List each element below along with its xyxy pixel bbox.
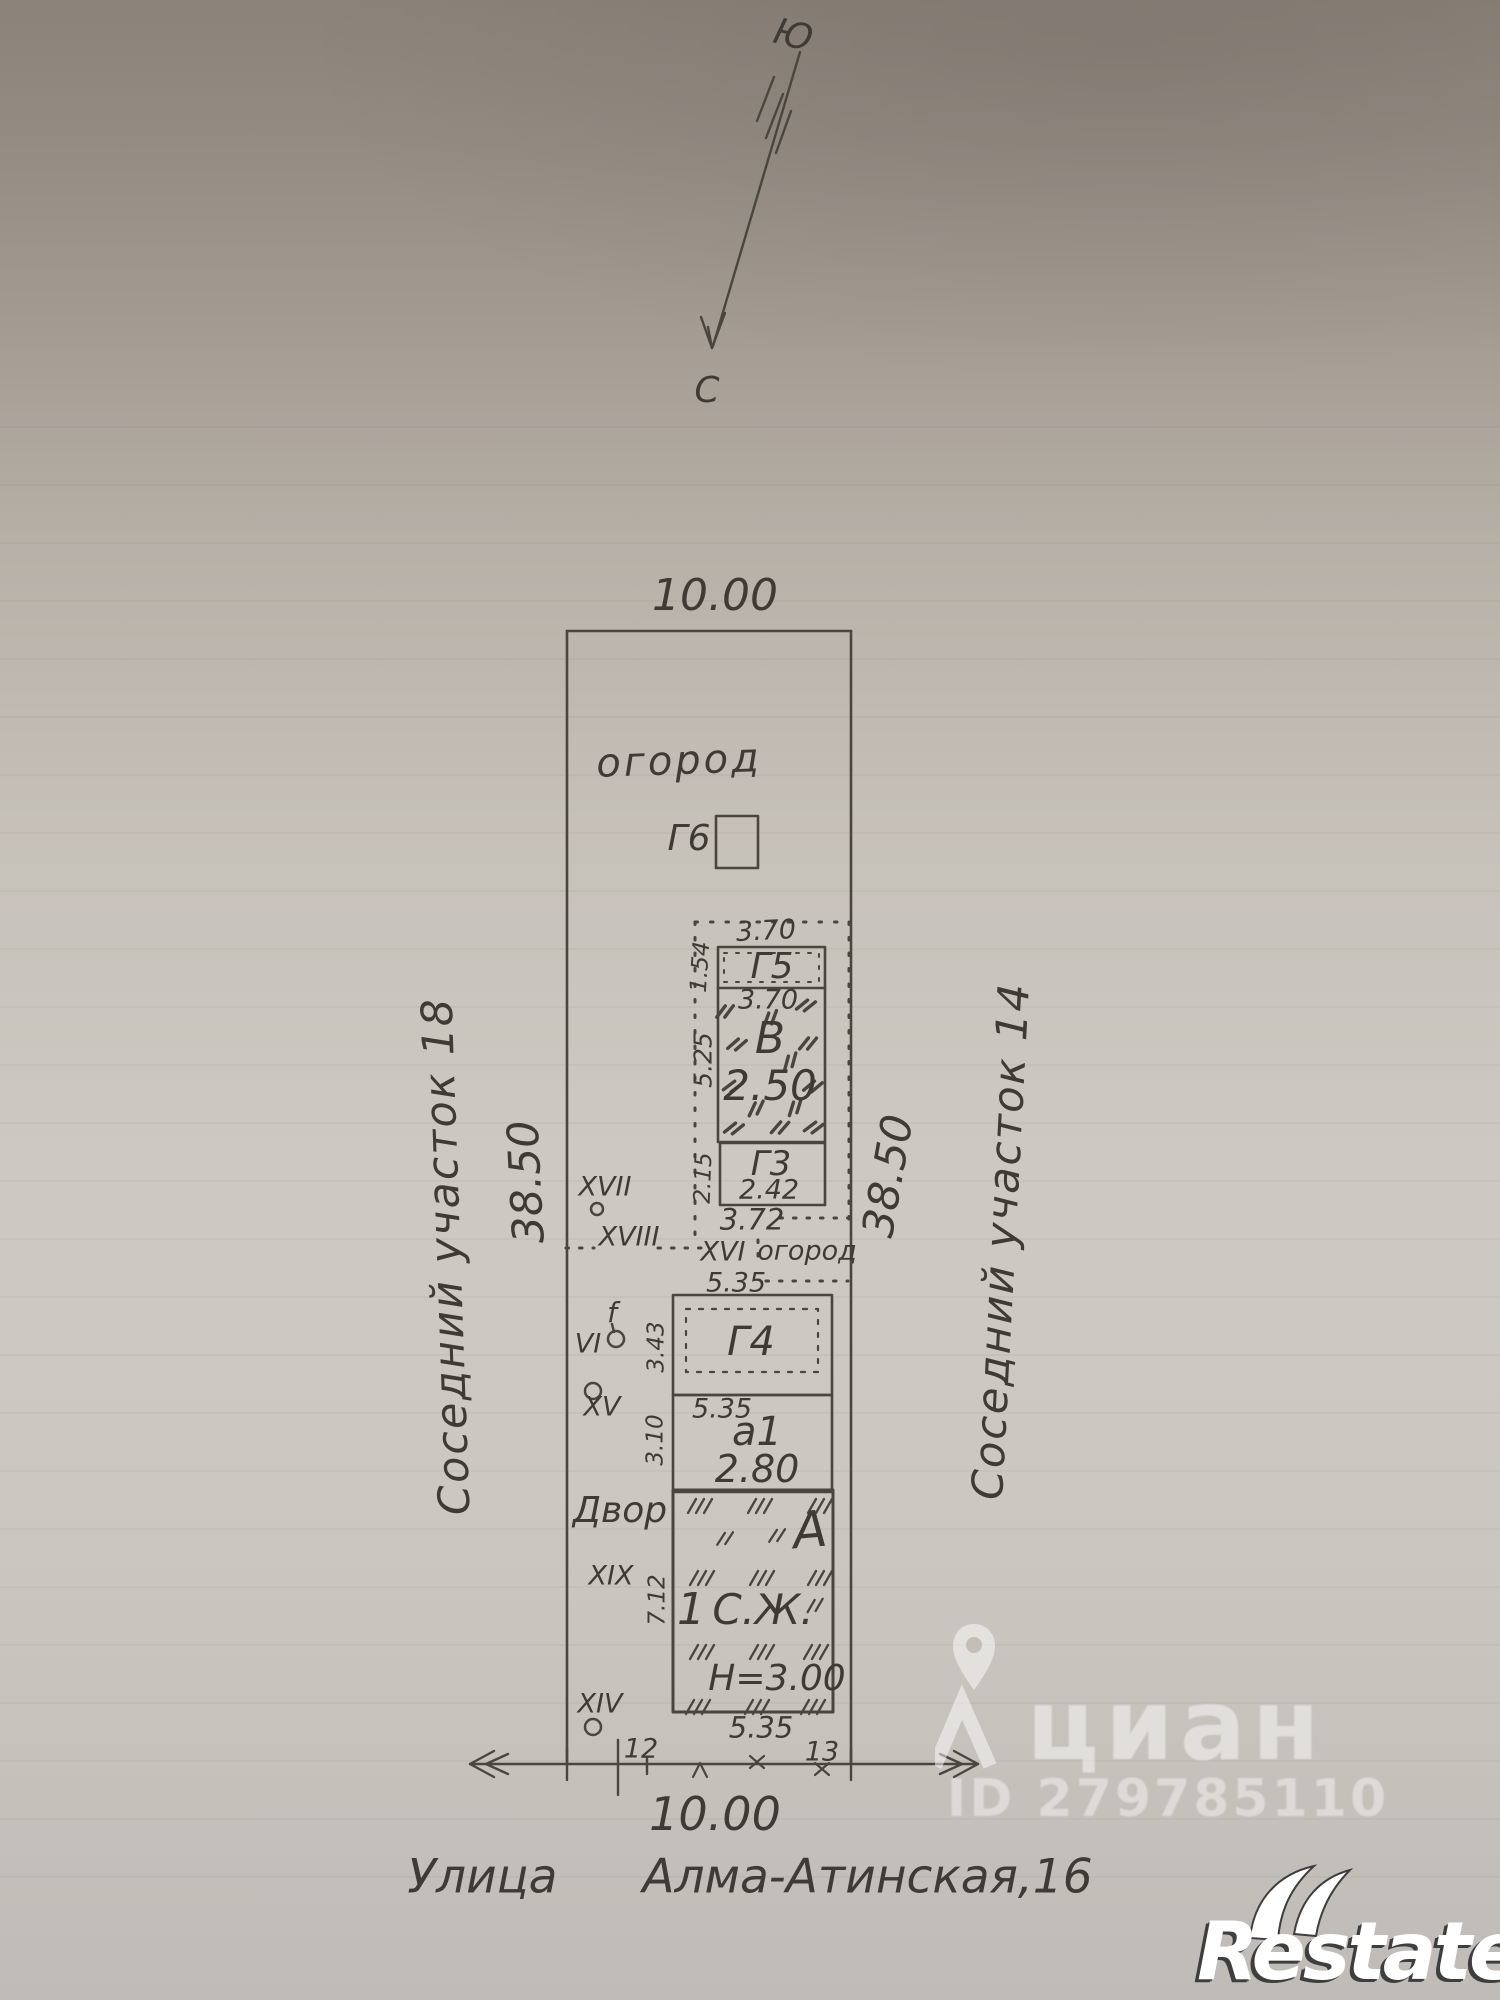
- house-height: Н=3.00: [708, 1661, 845, 1697]
- survey-point-xvi: XVI: [701, 1239, 746, 1266]
- house-depth-dimension: 7.12: [647, 1574, 670, 1625]
- annex-a1-label: а1: [732, 1412, 782, 1452]
- shed-v-label: В: [755, 1017, 785, 1061]
- shed-g6-outline: [716, 816, 758, 868]
- plot-bottom-width-dimension: 10.00: [649, 1791, 781, 1837]
- garden-top-label: огород: [596, 738, 763, 784]
- house-storeys: 1: [677, 1588, 705, 1632]
- garage-g4-width-dimension: 5.35: [706, 1270, 766, 1297]
- scanned-site-plan: Ю С 10.00 огород Г6 3.70 Г5 1.54 3.70 В …: [0, 0, 1500, 2000]
- survey-point-xix: XIX: [589, 1563, 634, 1590]
- plot-left-length-dimension: 38.50: [502, 1119, 551, 1244]
- street-name: Улица Алма-Атинская,16: [407, 1854, 1092, 1901]
- house-type: С.Ж.: [712, 1589, 813, 1631]
- cian-watermark: циан: [1026, 1669, 1325, 1783]
- survey-point-xv: XV: [584, 1394, 621, 1421]
- compass-north-label: С: [694, 373, 719, 409]
- shed-g3-depth-dimension: 2.15: [692, 1152, 717, 1204]
- house-a-label: А: [791, 1504, 829, 1557]
- yard-label: Двор: [573, 1493, 667, 1529]
- shed-g5-width-dimension: 3.70: [735, 916, 796, 946]
- shed-v-value: 2.50: [723, 1065, 817, 1107]
- shed-g6-label: Г6: [668, 821, 711, 857]
- survey-point-xvii: XVII: [579, 1174, 632, 1201]
- shed-g3-width-below-dimension: 3.72: [720, 1206, 785, 1235]
- annex-a1-value: 2.80: [715, 1450, 800, 1488]
- garden-mid-label: огород: [757, 1238, 857, 1265]
- house-width-dimension: 5.35: [729, 1714, 794, 1743]
- shed-v-depth-dimension: 5.25: [691, 1032, 716, 1088]
- survey-point-xviii: XVIII: [599, 1224, 660, 1251]
- survey-point-xiv: XIV: [578, 1691, 623, 1718]
- restate-logo: Restate: [1197, 1905, 1500, 1998]
- survey-point-13: 13: [805, 1739, 839, 1766]
- garage-g4-depth-dimension: 3.43: [646, 1321, 669, 1372]
- shed-g5-label: Г5: [751, 949, 794, 985]
- cian-id-watermark: ID 279785110: [947, 1769, 1389, 1829]
- survey-point-f: f: [607, 1299, 617, 1327]
- shed-g5-depth-dimension: 1.54: [688, 941, 715, 994]
- survey-point-12: 12: [624, 1736, 658, 1763]
- compass-arrow: [701, 52, 800, 348]
- shed-g3-value: 2.42: [739, 1177, 799, 1204]
- garage-g4-label: Г4: [727, 1322, 775, 1362]
- survey-point-circles: [585, 1203, 624, 1735]
- annex-a1-depth-dimension: 3.10: [645, 1414, 668, 1465]
- plot-top-width-dimension: 10.00: [652, 574, 778, 618]
- survey-point-vi: VI: [575, 1331, 601, 1358]
- shed-v-width-dimension: 3.70: [738, 987, 798, 1014]
